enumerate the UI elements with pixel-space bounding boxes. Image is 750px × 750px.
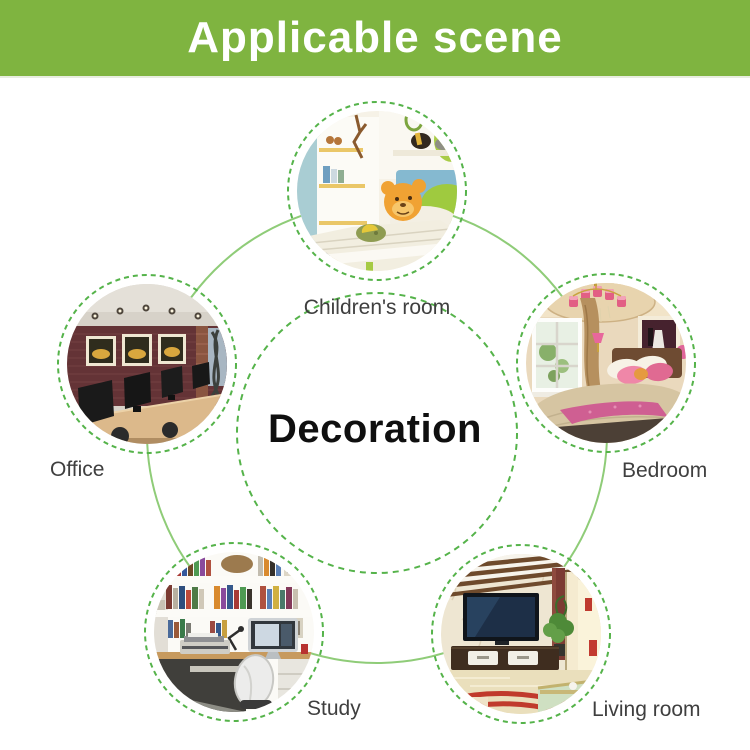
study-photo bbox=[154, 552, 314, 712]
node-label-office: Office bbox=[50, 458, 104, 482]
page: Applicable scene Decoration Children's r… bbox=[0, 0, 750, 750]
node-label-living-room: Living room bbox=[592, 698, 701, 722]
node-label-bedroom: Bedroom bbox=[622, 459, 707, 483]
page-title: Applicable scene bbox=[187, 13, 562, 63]
node-label-study: Study bbox=[307, 697, 361, 721]
living-room-photo bbox=[441, 554, 601, 714]
center-title: Decoration bbox=[0, 407, 750, 452]
header-banner: Applicable scene bbox=[0, 0, 750, 78]
diagram-svg bbox=[0, 0, 750, 750]
node-label-children-room: Children's room bbox=[270, 296, 484, 320]
